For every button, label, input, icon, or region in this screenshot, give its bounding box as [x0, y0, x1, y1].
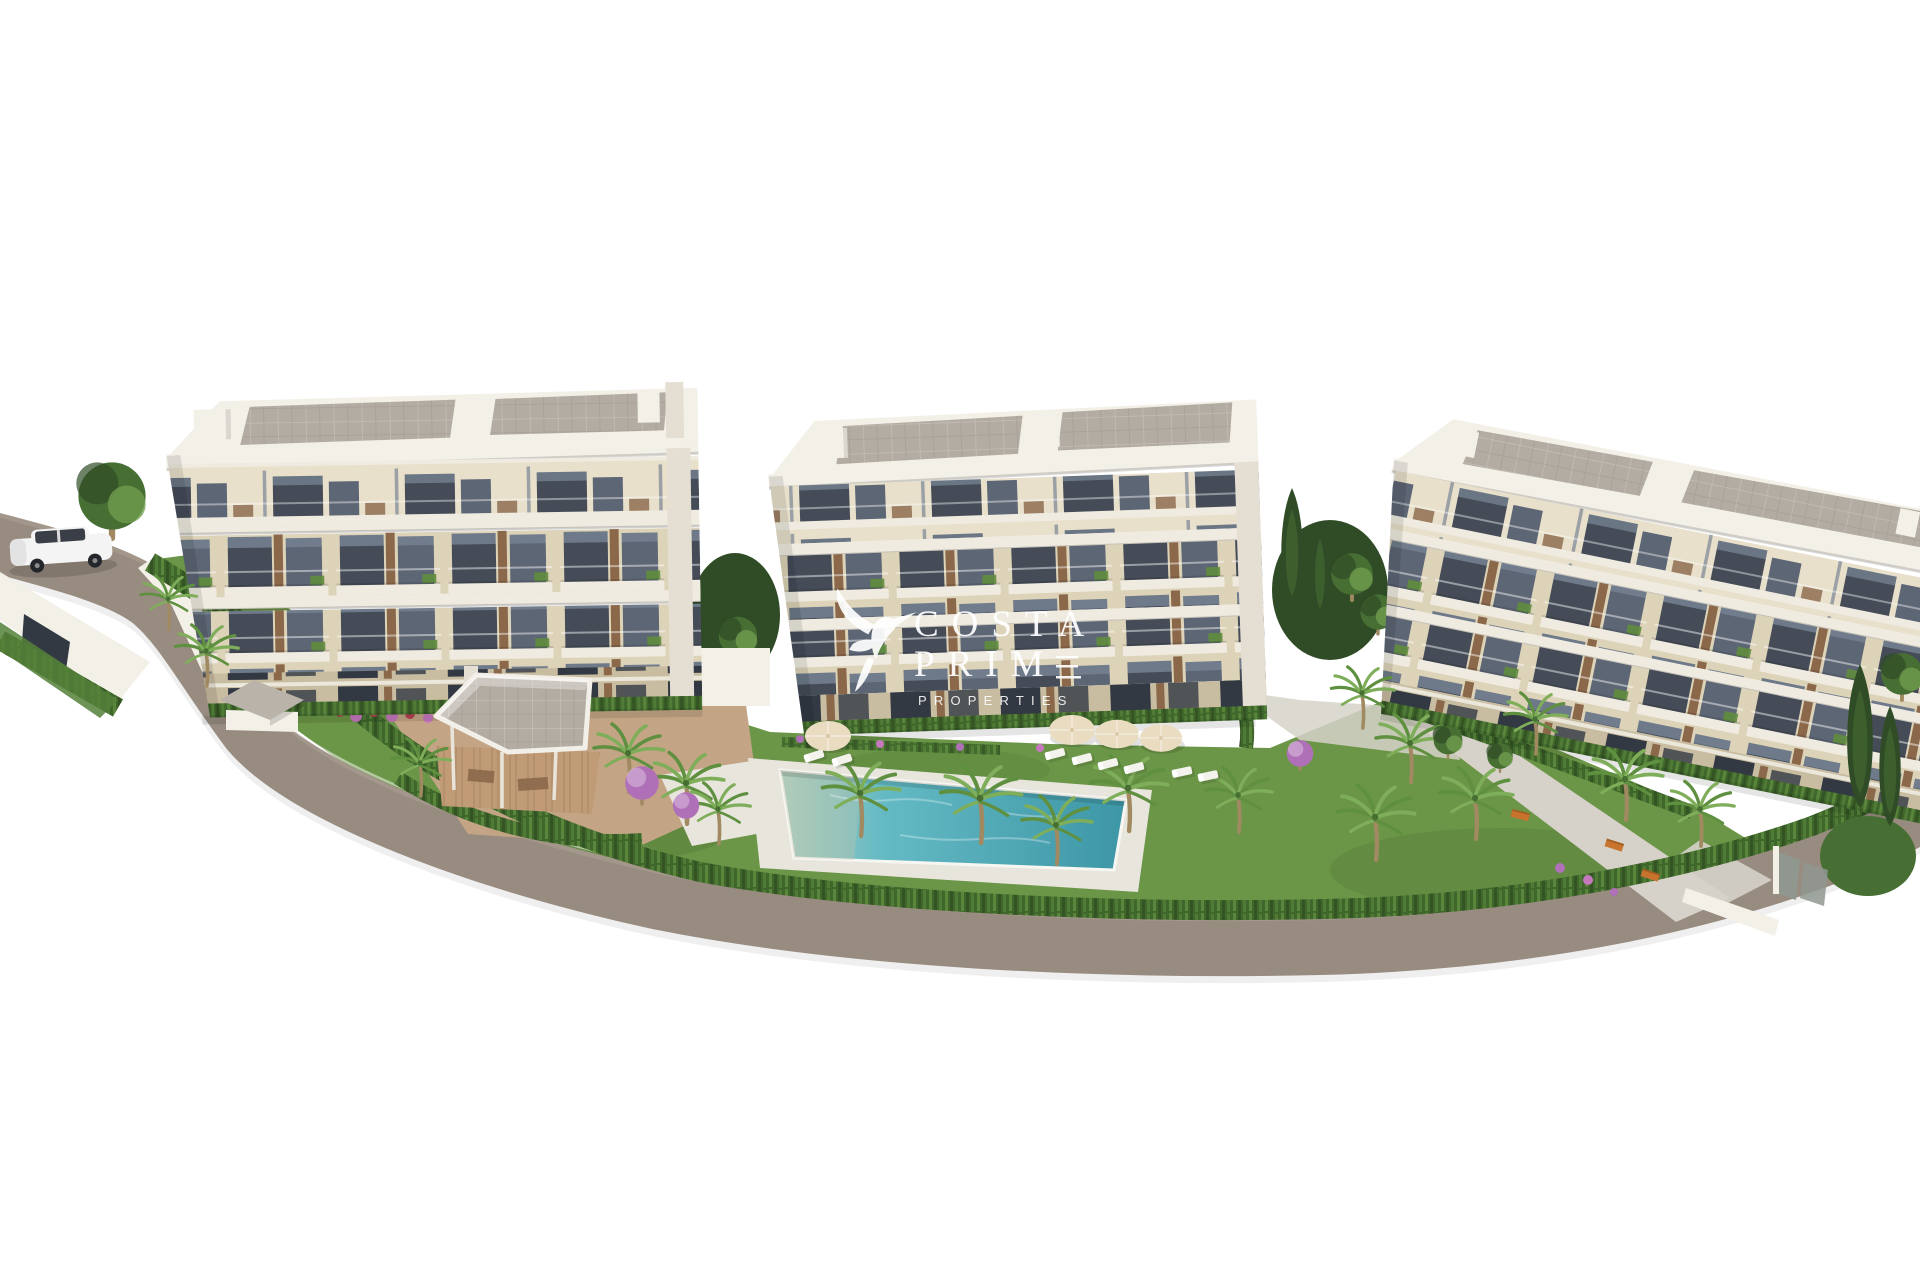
roof-chimney: [665, 382, 684, 438]
penthouse-level: [158, 456, 705, 523]
apartment-building-left: [153, 382, 708, 726]
apartment-level: [161, 604, 708, 677]
render-canvas: COSTA PRIME PROPERTIES: [0, 0, 1920, 1280]
boundary-wall: [700, 648, 770, 706]
tree: [76, 462, 145, 538]
site-plan-render: [0, 0, 1920, 1280]
tree: [1820, 816, 1916, 896]
apartment-level: [160, 528, 707, 601]
apartment-building-middle: [762, 399, 1275, 750]
